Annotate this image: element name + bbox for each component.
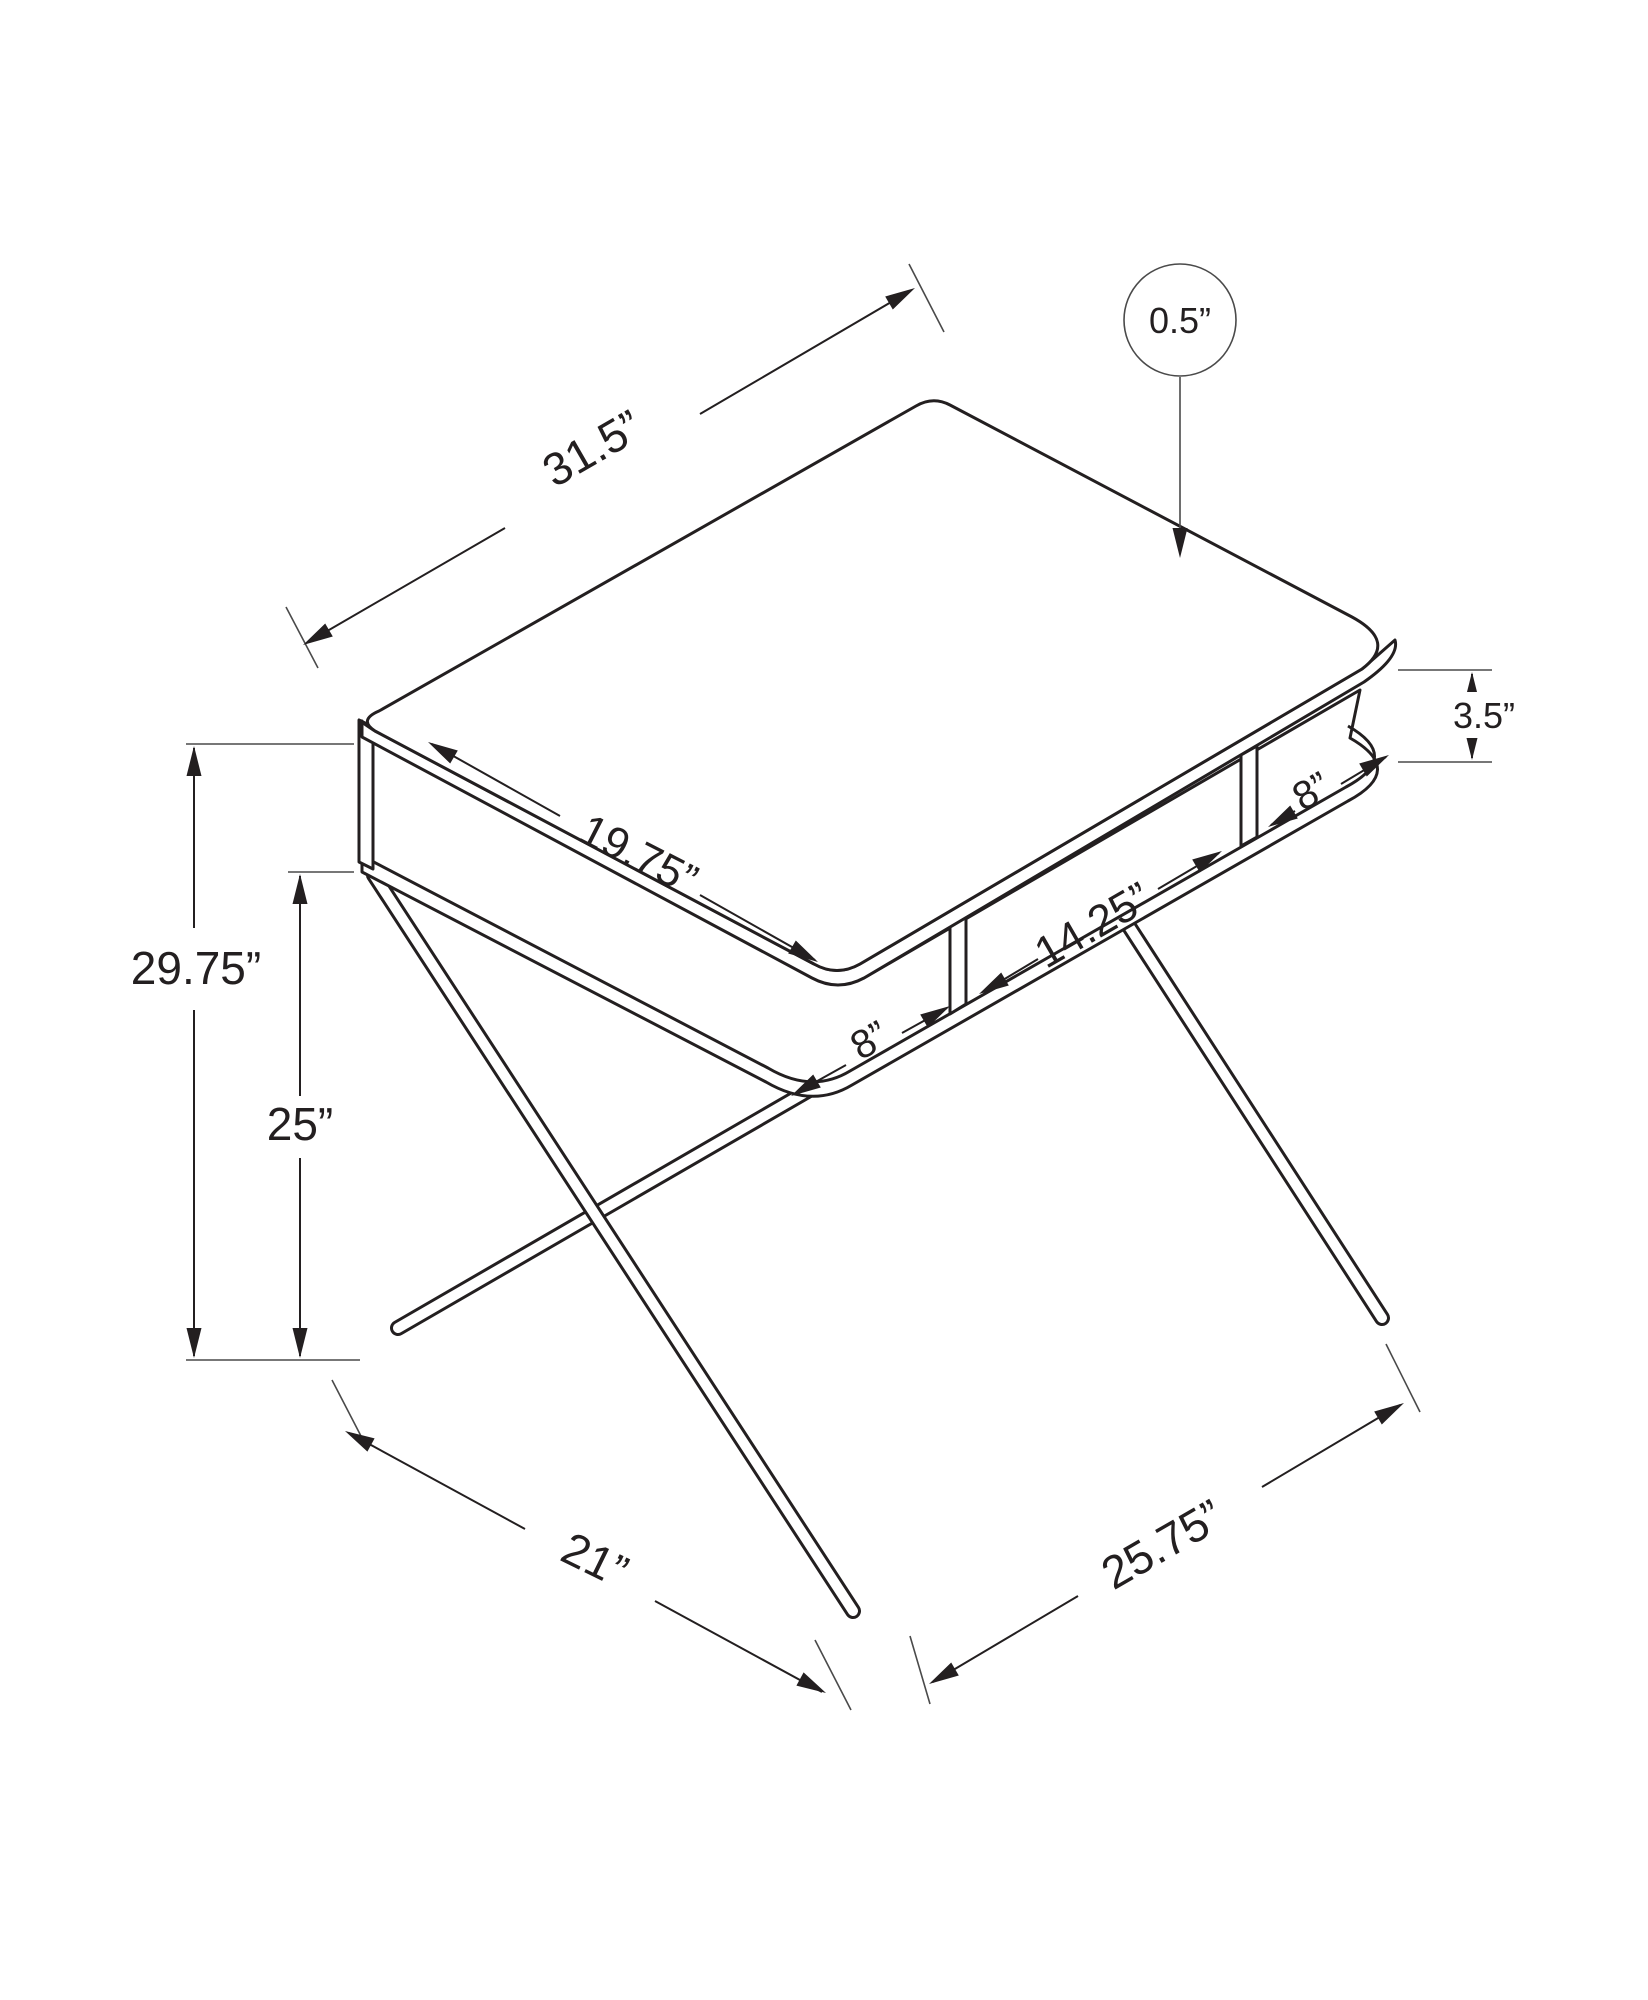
label-shelf-height: 25” [267, 1098, 333, 1150]
label-shelf-opening-height: 3.5” [1453, 695, 1515, 736]
shelf-divider-right [1241, 746, 1257, 846]
label-base-width: 25.75” [1093, 1489, 1232, 1599]
label-base-depth: 21” [554, 1522, 637, 1598]
dimension-overall-height: 29.75” [131, 744, 360, 1360]
dimension-shelf-height: 25” [267, 872, 354, 1358]
label-top-thickness: 0.5” [1149, 300, 1211, 341]
dimension-base-depth: 21” [332, 1380, 851, 1710]
shelf-divider-left [950, 915, 966, 1014]
desk-dimension-drawing: 31.5” 0.5” 19.75” 3.5” 8” 14.25” [0, 0, 1648, 2000]
dimension-base-width: 25.75” [910, 1344, 1420, 1704]
leg-tube-left-front-to-rear [398, 1085, 818, 1328]
label-overall-height: 29.75” [131, 942, 261, 994]
dimension-shelf-opening-height: 3.5” [1398, 670, 1518, 762]
label-desk-width: 31.5” [534, 399, 651, 496]
drawing-svg: 31.5” 0.5” 19.75” 3.5” 8” 14.25” [0, 0, 1648, 2000]
